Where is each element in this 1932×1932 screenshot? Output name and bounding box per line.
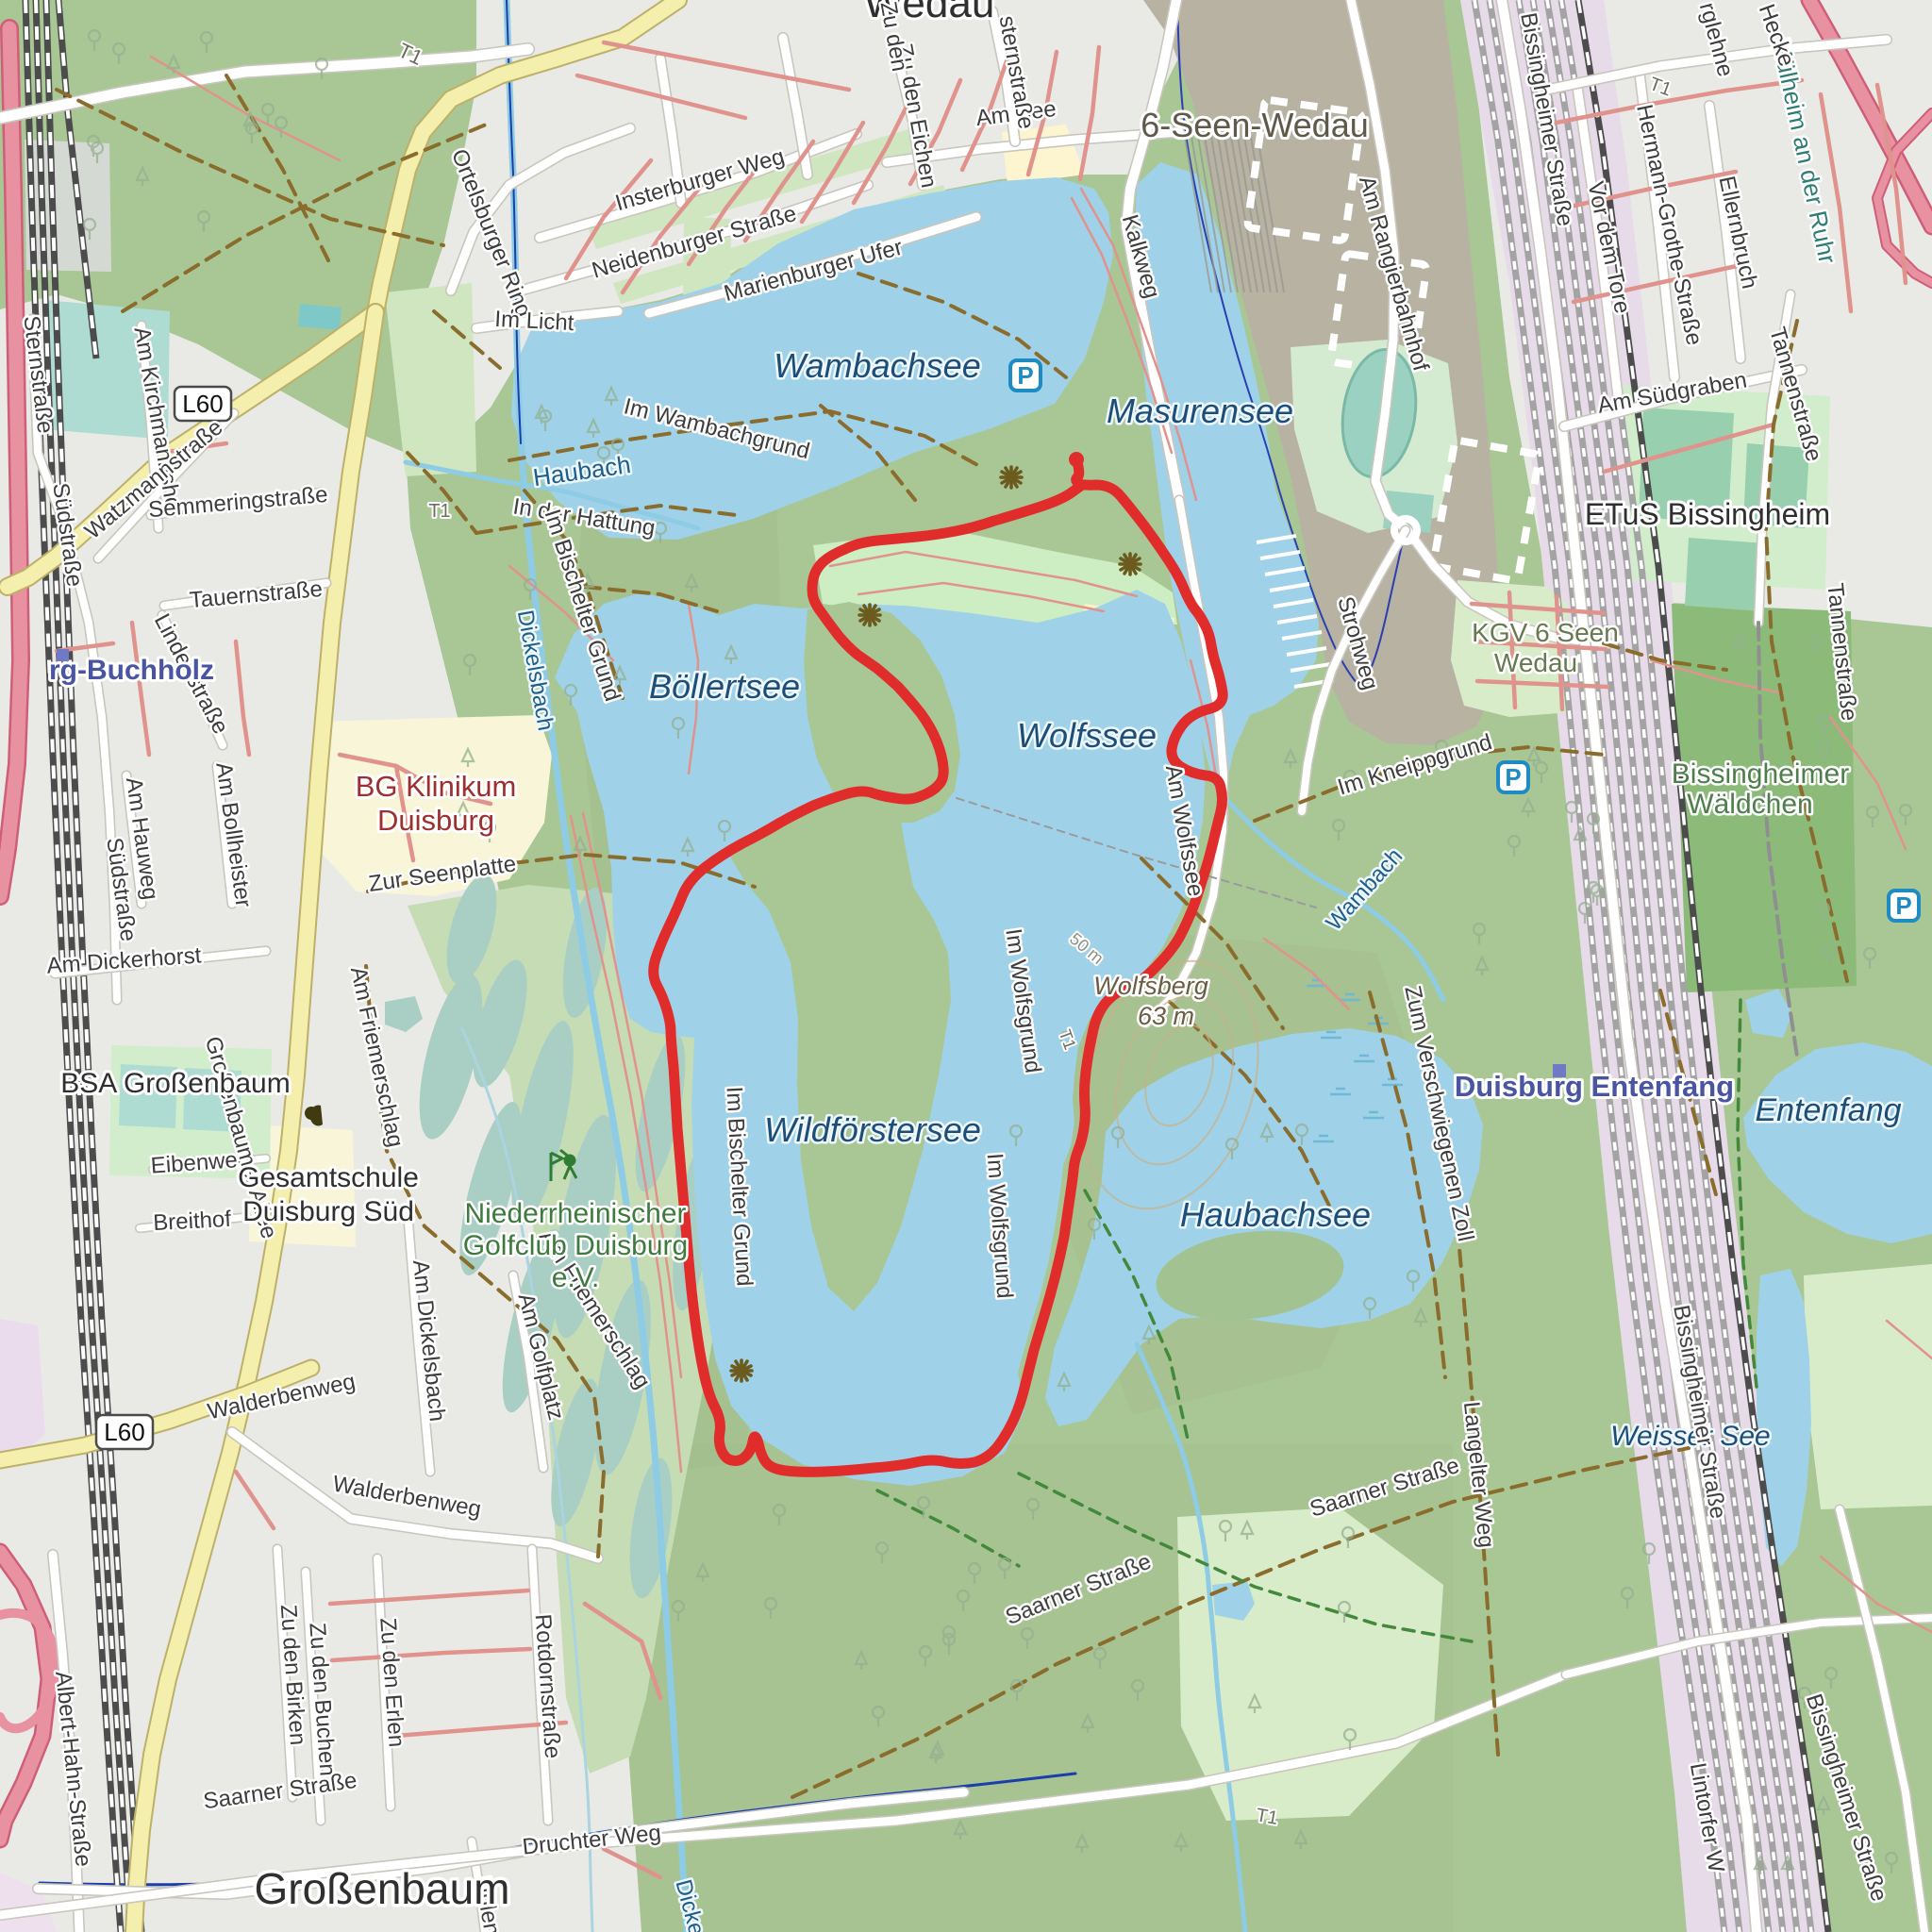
svg-text:L60: L60 — [104, 1418, 144, 1446]
svg-text:e.V.: e.V. — [552, 1262, 600, 1293]
svg-text:ETuS Bissingheim: ETuS Bissingheim — [1585, 497, 1830, 531]
svg-text:Breithof: Breithof — [153, 1207, 232, 1236]
svg-text:Duisburg Süd: Duisburg Süd — [242, 1196, 414, 1227]
svg-text:BSA Großenbaum: BSA Großenbaum — [60, 1068, 290, 1099]
svg-text:Golfclub Duisburg: Golfclub Duisburg — [463, 1230, 688, 1261]
svg-text:P: P — [1895, 891, 1911, 920]
svg-text:6-Seen-Wedau: 6-Seen-Wedau — [1141, 106, 1369, 144]
svg-text:Bissingheimer: Bissingheimer — [1672, 758, 1849, 790]
svg-text:Duisburg: Duisburg — [377, 804, 494, 837]
svg-text:Großenbaum: Großenbaum — [254, 1864, 509, 1913]
svg-text:T1: T1 — [428, 501, 450, 522]
svg-text:Wäldchen: Wäldchen — [1687, 789, 1812, 820]
svg-text:T1: T1 — [1255, 1805, 1280, 1829]
svg-text:Haubachsee: Haubachsee — [1180, 1195, 1371, 1234]
svg-text:Masurensee: Masurensee — [1107, 391, 1293, 430]
svg-text:Niederrheinischer: Niederrheinischer — [464, 1198, 686, 1229]
svg-text:Wildförstersee: Wildförstersee — [764, 1110, 981, 1149]
svg-text:Wedau: Wedau — [1494, 648, 1577, 677]
svg-text:P: P — [1505, 763, 1521, 791]
svg-text:Im Licht: Im Licht — [494, 307, 575, 336]
svg-text:KGV 6 Seen: KGV 6 Seen — [1472, 618, 1619, 647]
svg-text:Gesamtschule: Gesamtschule — [238, 1162, 419, 1193]
svg-text:Wolfssee: Wolfssee — [1017, 716, 1157, 755]
svg-text:P: P — [1017, 361, 1033, 390]
svg-text:Entenfang: Entenfang — [1755, 1092, 1901, 1128]
svg-text:Duisburg Entenfang: Duisburg Entenfang — [1455, 1070, 1734, 1103]
svg-text:Wolfsberg: Wolfsberg — [1093, 972, 1208, 1000]
svg-text:rg-Buchholz: rg-Buchholz — [49, 655, 214, 686]
svg-text:Wambachsee: Wambachsee — [774, 346, 980, 385]
svg-text:L60: L60 — [182, 390, 223, 418]
svg-text:BG Klinikum: BG Klinikum — [356, 770, 517, 803]
svg-text:63 m: 63 m — [1138, 1002, 1194, 1030]
svg-text:Böllertsee: Böllertsee — [649, 667, 800, 706]
